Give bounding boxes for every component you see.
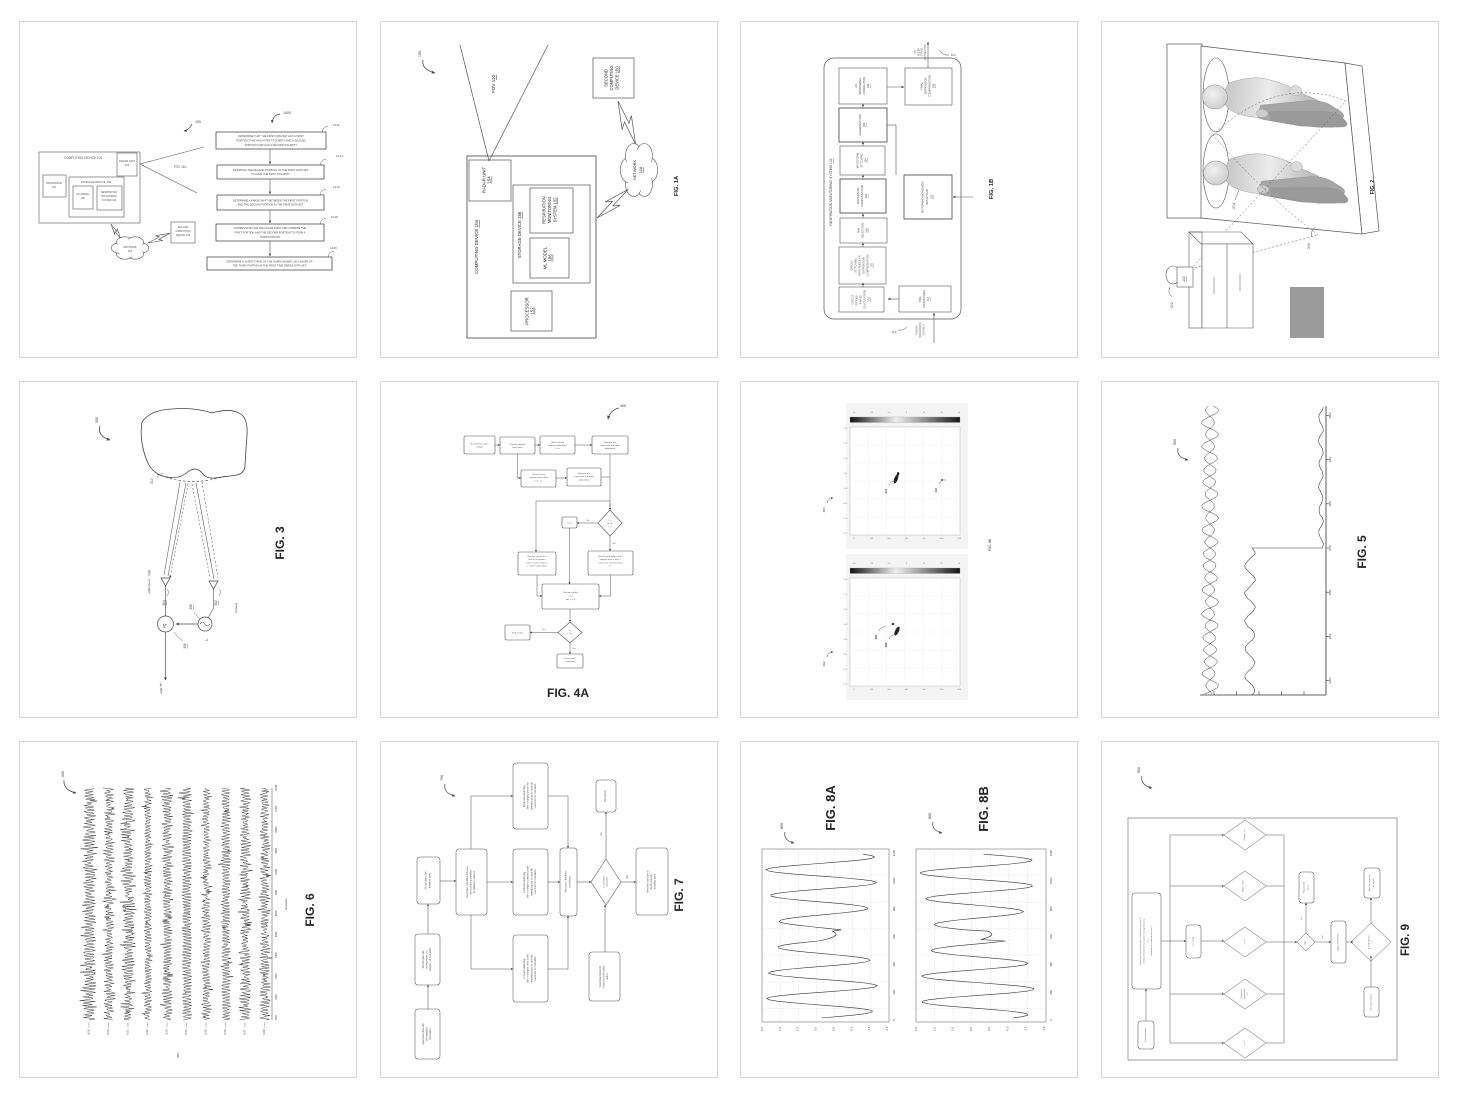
- svg-text:TO HAVE THE FIRST POLARITY: TO HAVE THE FIRST POLARITY: [251, 172, 290, 176]
- svg-text:< f_t: < f_t: [608, 525, 612, 528]
- svg-text:NETWORK: NETWORK: [632, 159, 637, 180]
- svg-text:408: 408: [884, 642, 888, 647]
- svg-text:f = f - f_c: f = f - f_c: [534, 480, 543, 482]
- svg-text:moving mean of w: moving mean of w: [426, 949, 428, 968]
- svg-text:RADAR UNIT: RADAR UNIT: [119, 159, 135, 163]
- svg-text:WINDOWING: WINDOWING: [858, 77, 862, 94]
- svg-text:s > w: s > w: [1243, 939, 1246, 944]
- svg-text:Smooth data with: Smooth data with: [421, 949, 424, 967]
- svg-text:DEVICE 150: DEVICE 150: [614, 65, 619, 89]
- svg-text:2.0: 2.0: [760, 1026, 764, 1030]
- svg-text:OR: OR: [1305, 940, 1307, 944]
- svg-text:PROCESSING: PROCESSING: [922, 290, 926, 308]
- svg-text:frame: frame: [1307, 884, 1309, 890]
- svg-text:FOV 110: FOV 110: [174, 165, 187, 169]
- svg-text:1.0: 1.0: [951, 1026, 955, 1030]
- svg-text:b35: b35: [203, 1029, 207, 1034]
- svg-text:302: 302: [214, 600, 218, 606]
- svg-text:I/Q: I/Q: [163, 623, 167, 628]
- svg-text:FIG. 1A: FIG. 1A: [674, 175, 680, 196]
- svg-text:noisy: noisy: [108, 1021, 110, 1027]
- svg-text:-0.15: -0.15: [843, 533, 847, 535]
- svg-text:COMPUTING DEVICE 104: COMPUTING DEVICE 104: [64, 156, 103, 160]
- svg-text:FIG. 4B: FIG. 4B: [988, 538, 992, 550]
- svg-text:1416: 1416: [333, 185, 340, 189]
- svg-text:-1.5: -1.5: [1042, 1026, 1046, 1031]
- svg-text:186: 186: [862, 122, 866, 127]
- svg-text:8000: 8000: [275, 868, 278, 874]
- svg-text:samples, etc normalize: samples, etc normalize: [429, 947, 432, 971]
- svg-text:STITCHING: STITCHING: [860, 153, 864, 167]
- svg-text:1200: 1200: [957, 538, 961, 540]
- svg-text:At each bin to bin: At each bin to bin: [424, 870, 427, 888]
- svg-text:RESPIRATION: RESPIRATION: [101, 191, 117, 194]
- svg-text:transition point for each bin: transition point for each bin: [530, 867, 533, 895]
- svg-text:(m,s,t): (m,s,t): [607, 522, 613, 525]
- svg-text:3000: 3000: [275, 972, 278, 978]
- svg-text:information: information: [429, 1027, 432, 1039]
- svg-text:400: 400: [888, 538, 891, 540]
- svg-text:1414: 1414: [336, 154, 343, 158]
- svg-text:0.15: 0.15: [844, 594, 848, 596]
- svg-text:based on circle radius: based on circle radius: [602, 964, 605, 987]
- svg-text:-0.10: -0.10: [843, 518, 847, 520]
- svg-text:WAVEFORM: WAVEFORM: [856, 151, 860, 167]
- svg-text:200: 200: [870, 538, 873, 540]
- svg-text:and/or: and/or: [606, 973, 609, 980]
- svg-text:b29: b29: [86, 1029, 90, 1034]
- svg-text:Take w samples offset on the: Take w samples offset on the: [526, 952, 529, 982]
- svg-text:FINAL: FINAL: [920, 81, 924, 89]
- svg-text:400: 400: [1049, 961, 1053, 966]
- svg-text:ESTIMATION: ESTIMATION: [923, 44, 927, 60]
- svg-text:SLEEP: SLEEP: [916, 47, 920, 56]
- svg-text:If correlation: If correlation: [602, 875, 605, 888]
- svg-text:< = f_c: < = f_c: [566, 632, 572, 635]
- svg-text:Motion count: Motion count: [1241, 879, 1244, 891]
- svg-text:STAGE: STAGE: [920, 47, 924, 56]
- svg-text:SELECTION: SELECTION: [861, 222, 865, 237]
- svg-text:transition point for each bin: transition point for each bin: [530, 781, 533, 809]
- svg-text:0.05: 0.05: [844, 473, 848, 475]
- svg-text:STORAGE DEVICE 156: STORAGE DEVICE 156: [517, 211, 522, 258]
- svg-text:800: 800: [928, 812, 932, 818]
- svg-text:WITH ANGULAR: WITH ANGULAR: [858, 255, 862, 276]
- svg-text:CIRCLE: CIRCLE: [850, 260, 854, 270]
- svg-text:1.0: 1.0: [796, 1026, 800, 1030]
- svg-text:transition point: transition point: [653, 873, 656, 888]
- svg-text:0.20: 0.20: [844, 428, 848, 430]
- svg-text:Input radar data with: Input radar data with: [421, 1022, 424, 1044]
- svg-text:bin transition: bin transition: [425, 1026, 428, 1040]
- svg-text:204: 204: [1232, 203, 1236, 209]
- svg-text:1000: 1000: [1049, 877, 1053, 884]
- svg-text:Samples: Samples: [284, 897, 288, 909]
- svg-text:-0.05: -0.05: [843, 503, 847, 505]
- svg-text:Forward windowing:: Forward windowing:: [523, 957, 526, 978]
- svg-text:first set n samples: first set n samples: [528, 558, 545, 561]
- svg-text:COMPUTING: COMPUTING: [609, 65, 614, 90]
- svg-text:SEGMENTATION: SEGMENTATION: [858, 114, 862, 135]
- svg-text:= 1 that overlap smart: = 1 that overlap smart: [526, 564, 547, 567]
- svg-text:DETECTION: DETECTION: [925, 189, 929, 205]
- svg-text:-0.5: -0.5: [849, 1026, 853, 1031]
- svg-text:PRE-: PRE-: [918, 295, 922, 302]
- svg-text:1200: 1200: [957, 689, 961, 691]
- svg-text:184: 184: [864, 157, 868, 162]
- svg-text:Invert the waveform of: Invert the waveform of: [646, 869, 649, 892]
- svg-text:600: 600: [905, 538, 908, 540]
- svg-text:Don't invert: Don't invert: [604, 789, 607, 801]
- svg-text:Backward windowing:: Backward windowing:: [523, 784, 526, 806]
- svg-text:fₖ: fₖ: [205, 638, 209, 641]
- svg-text:AND THE SECOND PORTION IN THE: AND THE SECOND PORTION IN THE FIRST DATA…: [238, 202, 304, 206]
- svg-text:sample: sample: [475, 446, 483, 448]
- svg-text:noisy: noisy: [186, 1021, 188, 1027]
- svg-text:DETERMINE A SLEEP STAGE OF THE: DETERMINE A SLEEP STAGE OF THE HUMAN BAS…: [226, 259, 313, 263]
- svg-text:400: 400: [892, 961, 896, 966]
- svg-text:abs, y = 0: abs, y = 0: [565, 599, 575, 601]
- svg-text:1200: 1200: [892, 849, 896, 856]
- svg-text:1000: 1000: [892, 877, 896, 884]
- svg-text:THIRD PORTION: THIRD PORTION: [260, 234, 281, 238]
- svg-text:0.0: 0.0: [831, 1026, 835, 1030]
- svg-text:417: 417: [934, 487, 938, 492]
- svg-text:417: 417: [884, 488, 888, 493]
- svg-text:COMPENSATION: COMPENSATION: [928, 75, 932, 97]
- svg-text:COMPENSATION: COMPENSATION: [860, 185, 864, 207]
- svg-text:9000: 9000: [275, 847, 278, 853]
- svg-text:MOTION/NO-MOVEMENT: MOTION/NO-MOVEMENT: [921, 180, 925, 212]
- svg-text:Flat-bin shuffle: Flat-bin shuffle: [563, 591, 578, 594]
- svg-text:the bin after the: the bin after the: [650, 872, 653, 889]
- svg-text:FIG. 2: FIG. 2: [1370, 179, 1376, 194]
- svg-text:noisy: noisy: [127, 1021, 129, 1027]
- svg-text:-0.5: -0.5: [1005, 1026, 1009, 1031]
- svg-text:If range r > s: If range r > s: [1243, 829, 1246, 840]
- svg-text:600: 600: [61, 771, 65, 777]
- svg-text:Remove the: Remove the: [578, 472, 591, 475]
- svg-text:where 1/e, f set new listed: where 1/e, f set new listed: [598, 561, 623, 564]
- svg-text:ML MODEL: ML MODEL: [77, 193, 91, 196]
- svg-text:ML MODEL: ML MODEL: [542, 246, 547, 269]
- svg-text:polynomial: polynomial: [578, 479, 589, 481]
- svg-text:INVERTING THE SECOND PORTION O: INVERTING THE SECOND PORTION OF THE FIRS…: [233, 167, 309, 171]
- svg-text:180: 180: [865, 227, 869, 232]
- svg-text:previous thresholds (f, s), se: previous thresholds (f, s), segment ener…: [1142, 918, 1145, 963]
- svg-text:2600: 2600: [1328, 632, 1332, 638]
- svg-text:TO: TO: [913, 50, 917, 54]
- svg-text:For each segment: For each segment: [1369, 993, 1372, 1010]
- svg-text:1000: 1000: [275, 1014, 278, 1020]
- svg-text:as invalid: as invalid: [1372, 878, 1374, 886]
- svg-text:5000: 5000: [275, 931, 278, 937]
- svg-text:0.00: 0.00: [844, 488, 848, 490]
- svg-text:-1.5: -1.5: [885, 1026, 889, 1031]
- svg-text:202: 202: [1170, 302, 1174, 308]
- svg-text:0.20: 0.20: [844, 579, 848, 581]
- svg-text:178: 178: [870, 262, 874, 267]
- svg-text:BIN: BIN: [176, 1052, 180, 1057]
- svg-text:Take w samples centered on the: Take w samples centered on the: [526, 864, 529, 898]
- svg-text:STITCHING: STITCHING: [854, 258, 858, 272]
- svg-text:Process against: Process against: [509, 442, 525, 445]
- svg-text:DETERMINE A PHASE SHIFT BETWEE: DETERMINE A PHASE SHIFT BETWEEN THE FIRS…: [233, 198, 308, 202]
- svg-text:COMPUTING: COMPUTING: [175, 230, 190, 233]
- svg-text:f_c: f_c: [608, 520, 611, 522]
- svg-text:b33: b33: [164, 1029, 168, 1034]
- svg-text:0: 0: [1049, 1018, 1053, 1020]
- svg-text:DISPERSION: DISPERSION: [862, 257, 866, 274]
- svg-text:noisy: noisy: [244, 1021, 246, 1027]
- svg-text:FITTING -: FITTING -: [855, 293, 859, 305]
- svg-text:11000: 11000: [275, 805, 278, 812]
- svg-text:WAVEFORM: WAVEFORM: [918, 322, 922, 337]
- svg-text:CALCULATION: CALCULATION: [863, 290, 867, 309]
- svg-text:2800: 2800: [1328, 588, 1332, 594]
- svg-text:152: 152: [529, 306, 534, 314]
- svg-text:FIG. 7: FIG. 7: [672, 878, 686, 912]
- svg-text:a(t)sin(ωₖ(t - τ(t))): a(t)sin(ωₖ(t - τ(t))): [147, 570, 151, 593]
- svg-text:If invalid frames: If invalid frames: [1368, 934, 1370, 948]
- svg-text:waveform for correlation: waveform for correlation: [533, 782, 536, 807]
- svg-text:COMPENSATE FOR THE PHASE SHIFT: COMPENSATE FOR THE PHASE SHIFT AND COMBI…: [234, 226, 307, 230]
- svg-text:PORTION THAT HAS A FIRST POLAR: PORTION THAT HAS A FIRST POLARITY AND A …: [237, 138, 306, 142]
- svg-text:154: 154: [125, 163, 130, 167]
- svg-text:noisy: noisy: [205, 1021, 207, 1027]
- svg-text:2D: 2D: [854, 84, 858, 87]
- svg-text:threshold: threshold: [605, 876, 608, 886]
- svg-text:RESPIRATION: RESPIRATION: [541, 196, 546, 223]
- svg-text:Yes: Yes: [626, 874, 629, 879]
- svg-text:2400: 2400: [1328, 677, 1332, 683]
- svg-text:Determine correlation between: Determine correlation between: [465, 865, 468, 897]
- svg-text:from a and f_c where s: from a and f_c where s: [526, 561, 547, 564]
- svg-text:-0.05: -0.05: [843, 654, 847, 656]
- svg-text:segment with offset: segment with offset: [529, 476, 548, 479]
- svg-text:0.10: 0.10: [844, 458, 848, 460]
- svg-text:1000: 1000: [940, 689, 944, 691]
- svg-text:310: 310: [150, 478, 154, 484]
- svg-text:Offset current: Offset current: [550, 440, 564, 443]
- svg-text:0.0: 0.0: [987, 1026, 991, 1030]
- svg-text:1412: 1412: [333, 123, 340, 127]
- svg-text:Mark the segment: Mark the segment: [1368, 874, 1371, 890]
- svg-text:Determine threshold: Determine threshold: [598, 965, 601, 986]
- svg-text:1420: 1420: [330, 246, 337, 250]
- svg-text:112: 112: [892, 330, 897, 334]
- svg-text:800: 800: [923, 689, 926, 691]
- svg-text:FIRST PORTION AND THE SECOND P: FIRST PORTION AND THE SECOND PORTION TO …: [234, 230, 305, 234]
- svg-text:and: and: [1147, 939, 1149, 942]
- svg-text:SYSTEM 102: SYSTEM 102: [102, 199, 117, 202]
- svg-text:406: 406: [822, 507, 826, 512]
- svg-text:3200: 3200: [1328, 500, 1332, 506]
- svg-text:f = a: f = a: [555, 448, 560, 450]
- svg-text:segments: segments: [565, 660, 575, 663]
- svg-text:1400: 1400: [283, 111, 291, 115]
- svg-text:FIG. 3: FIG. 3: [273, 526, 287, 560]
- svg-text:b34: b34: [184, 1029, 188, 1034]
- svg-text:polynomial: polynomial: [604, 448, 615, 450]
- svg-text:Offset current: Offset current: [531, 473, 545, 476]
- svg-text:700: 700: [440, 775, 444, 781]
- svg-text:3600: 3600: [1328, 411, 1332, 417]
- svg-text:PROCESSOR: PROCESSOR: [524, 297, 529, 324]
- svg-text:Re-reference data: Re-reference data: [470, 442, 488, 445]
- svg-text:100: 100: [195, 120, 201, 124]
- svg-text:w = f (s,p): w = f (s,p): [1192, 936, 1194, 945]
- svg-text:b31: b31: [125, 1029, 129, 1034]
- svg-text:206: 206: [1307, 243, 1311, 249]
- svg-text:No: No: [600, 831, 603, 835]
- svg-text:oscillations (f number of bad: oscillations (f number of bad runs) f: [1149, 925, 1152, 955]
- svg-text:b36: b36: [223, 1029, 227, 1034]
- svg-text:402: 402: [822, 661, 826, 666]
- svg-text:12000: 12000: [275, 784, 278, 791]
- svg-text:CIRCLE: CIRCLE: [851, 294, 855, 304]
- svg-text:> s: > s: [1370, 940, 1373, 943]
- svg-text:signal with 3rd order: signal with 3rd order: [600, 444, 620, 447]
- svg-text:FIG. 1B: FIG. 1B: [989, 178, 995, 198]
- svg-text:176: 176: [867, 296, 871, 301]
- svg-text:800: 800: [1049, 905, 1053, 910]
- svg-text:RADAR UNIT: RADAR UNIT: [481, 166, 486, 193]
- svg-text:i=i+1: i=i+1: [567, 522, 573, 524]
- svg-text:190: 190: [932, 83, 936, 88]
- svg-text:Yes: Yes: [1322, 934, 1324, 938]
- svg-text:samples from a and f_c: samples from a and f_c: [599, 558, 621, 561]
- svg-text:Insert wave: Insert wave: [564, 657, 576, 660]
- svg-text:MONITORING: MONITORING: [547, 196, 552, 223]
- svg-text:a(t)e⁻ʲθ⁽ᵗ⁾: a(t)e⁻ʲθ⁽ᵗ⁾: [159, 681, 163, 693]
- svg-text:400: 400: [619, 404, 625, 408]
- svg-text:Take w samples before the: Take w samples before the: [526, 781, 529, 809]
- svg-text:by utilizing 3 windows: by utilizing 3 windows: [473, 870, 476, 893]
- svg-text:PHASE: PHASE: [859, 294, 863, 303]
- svg-text:s = a: s = a: [568, 595, 574, 597]
- svg-text:600: 600: [892, 933, 896, 938]
- svg-text:transition point: transition point: [428, 872, 431, 887]
- svg-text:1.5: 1.5: [778, 1026, 782, 1030]
- svg-text:Remove and replace first n: Remove and replace first n: [598, 555, 624, 558]
- svg-text:200: 200: [1049, 989, 1053, 994]
- svg-text:-1.0: -1.0: [1024, 1026, 1028, 1031]
- svg-text:b37: b37: [242, 1029, 246, 1034]
- svg-text:noisy: noisy: [264, 1021, 266, 1027]
- svg-text:noisy: noisy: [88, 1021, 90, 1027]
- svg-text:sin(ωₖt): sin(ωₖt): [234, 602, 238, 612]
- svg-text:Flag as invalid frame: Flag as invalid frame: [1337, 931, 1339, 950]
- svg-text:For each frame: For each frame: [1144, 1027, 1147, 1042]
- svg-text:0.5: 0.5: [814, 1026, 818, 1030]
- svg-text:Determine if the thresholds(s): Determine if the thresholds(s), number w…: [1139, 916, 1142, 964]
- svg-text:1200: 1200: [1049, 849, 1053, 856]
- svg-text:0.15: 0.15: [844, 443, 848, 445]
- svg-text:FIG. 4A: FIG. 4A: [546, 686, 588, 700]
- svg-text:> s: > s: [1246, 992, 1249, 995]
- svg-text:FIG. 9: FIG. 9: [1400, 924, 1412, 956]
- svg-text:6000: 6000: [275, 910, 278, 916]
- svg-text:DEVICE 158: DEVICE 158: [176, 234, 191, 237]
- svg-text:300: 300: [95, 416, 99, 422]
- svg-text:SECOND: SECOND: [178, 226, 189, 229]
- svg-text:waveform for correlation: waveform for correlation: [533, 955, 536, 980]
- svg-text:COMPUTING DEVICE 104: COMPUTING DEVICE 104: [474, 219, 479, 274]
- svg-text:2.0: 2.0: [914, 1026, 918, 1030]
- svg-text:Yes: Yes: [612, 543, 616, 545]
- svg-text:200: 200: [870, 689, 873, 691]
- svg-text:102: 102: [1182, 276, 1186, 282]
- svg-text:No: No: [1301, 915, 1303, 919]
- svg-text:2000: 2000: [275, 993, 278, 999]
- svg-text:CORRECTION: CORRECTION: [862, 76, 866, 94]
- svg-text:noisy: noisy: [147, 1021, 149, 1027]
- svg-text:7000: 7000: [275, 889, 278, 895]
- svg-text:0: 0: [854, 689, 855, 691]
- svg-text:SIGNALS: SIGNALS: [921, 324, 925, 336]
- svg-text:NETWORK: NETWORK: [123, 245, 137, 249]
- svg-text:b32: b32: [145, 1029, 149, 1034]
- svg-text:308: 308: [189, 604, 193, 610]
- svg-text:the two bins at transition: the two bins at transition: [469, 868, 472, 893]
- svg-text:0: 0: [854, 538, 855, 540]
- svg-text:4000: 4000: [275, 951, 278, 957]
- svg-text:waveform for correlation: waveform for correlation: [533, 868, 536, 893]
- svg-text:0.05: 0.05: [844, 624, 848, 626]
- svg-text:noisy: noisy: [225, 1021, 227, 1027]
- svg-text:-0.15: -0.15: [843, 684, 847, 686]
- svg-text:306: 306: [183, 643, 187, 649]
- svg-text:No: No: [542, 629, 546, 631]
- svg-text:b30: b30: [106, 1029, 110, 1034]
- svg-text:0.00: 0.00: [844, 639, 848, 641]
- svg-text:-0.10: -0.10: [843, 669, 847, 671]
- svg-text:192: 192: [930, 194, 934, 199]
- svg-text:transition point for each bin: transition point for each bin: [530, 953, 533, 981]
- svg-text:Remove and mask a: Remove and mask a: [527, 556, 547, 558]
- svg-text:118: 118: [128, 249, 133, 253]
- svg-text:110: 110: [951, 53, 956, 57]
- svg-text:correlations: correlations: [568, 875, 571, 888]
- svg-text:1418: 1418: [331, 215, 338, 219]
- svg-text:500: 500: [1173, 439, 1177, 445]
- svg-text:COMPENSATION: COMPENSATION: [866, 254, 870, 276]
- svg-text:Remove the: Remove the: [604, 440, 617, 443]
- svg-text:STORAGE DEVICE 156: STORAGE DEVICE 156: [81, 180, 112, 184]
- svg-text:FOV 110: FOV 110: [491, 74, 496, 92]
- svg-text:signal with 3rd order: signal with 3rd order: [574, 475, 594, 478]
- svg-text:unexpected: unexpected: [1243, 988, 1246, 998]
- svg-text:segment with offset: segment with offset: [548, 444, 567, 447]
- svg-text:Take max of the three: Take max of the three: [564, 870, 567, 893]
- svg-text:160: 160: [81, 197, 86, 200]
- svg-text:DISPERSION: DISPERSION: [924, 77, 928, 94]
- svg-text:MONITORING: MONITORING: [101, 195, 117, 198]
- svg-text:FIG. 8A: FIG. 8A: [823, 784, 838, 830]
- svg-text:DISPERSION: DISPERSION: [856, 187, 860, 204]
- svg-text:3400: 3400: [1328, 456, 1332, 462]
- svg-text:RADAR: RADAR: [915, 325, 919, 334]
- svg-text:600: 600: [1049, 933, 1053, 938]
- svg-text:10000: 10000: [275, 825, 278, 832]
- svg-text:114: 114: [926, 296, 930, 301]
- svg-text:Centered windowing:: Centered windowing:: [523, 870, 526, 892]
- svg-text:-1.0: -1.0: [867, 1026, 871, 1031]
- svg-text:600: 600: [905, 689, 908, 691]
- svg-text:400: 400: [888, 689, 891, 691]
- svg-text:final curve: final curve: [512, 446, 523, 449]
